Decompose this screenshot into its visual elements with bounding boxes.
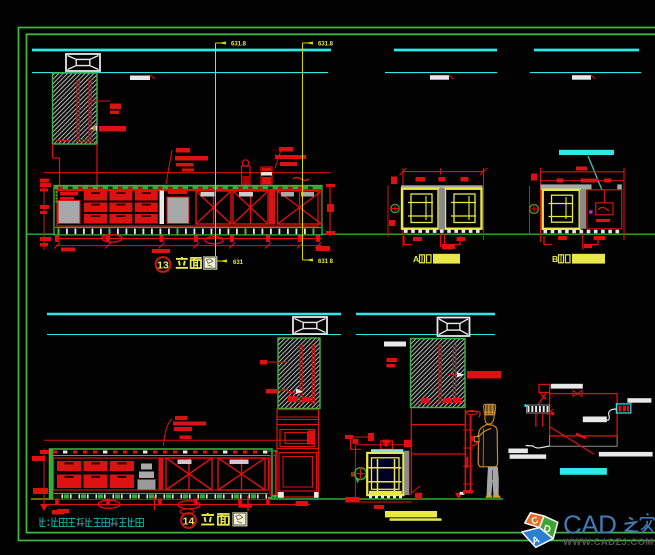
svg-text:631.8: 631.8 [231,42,247,48]
svg-text:A: A [413,254,419,264]
svg-text:631: 631 [233,260,244,266]
svg-text:631 8: 631 8 [318,259,334,265]
svg-text:14: 14 [183,516,195,528]
svg-text:CAD: CAD [563,510,616,540]
svg-text:WWW.CADZJ.COM: WWW.CADZJ.COM [563,537,654,548]
svg-text:B: B [552,254,558,264]
svg-text:13: 13 [157,260,169,272]
svg-text:631.8: 631.8 [318,42,334,48]
